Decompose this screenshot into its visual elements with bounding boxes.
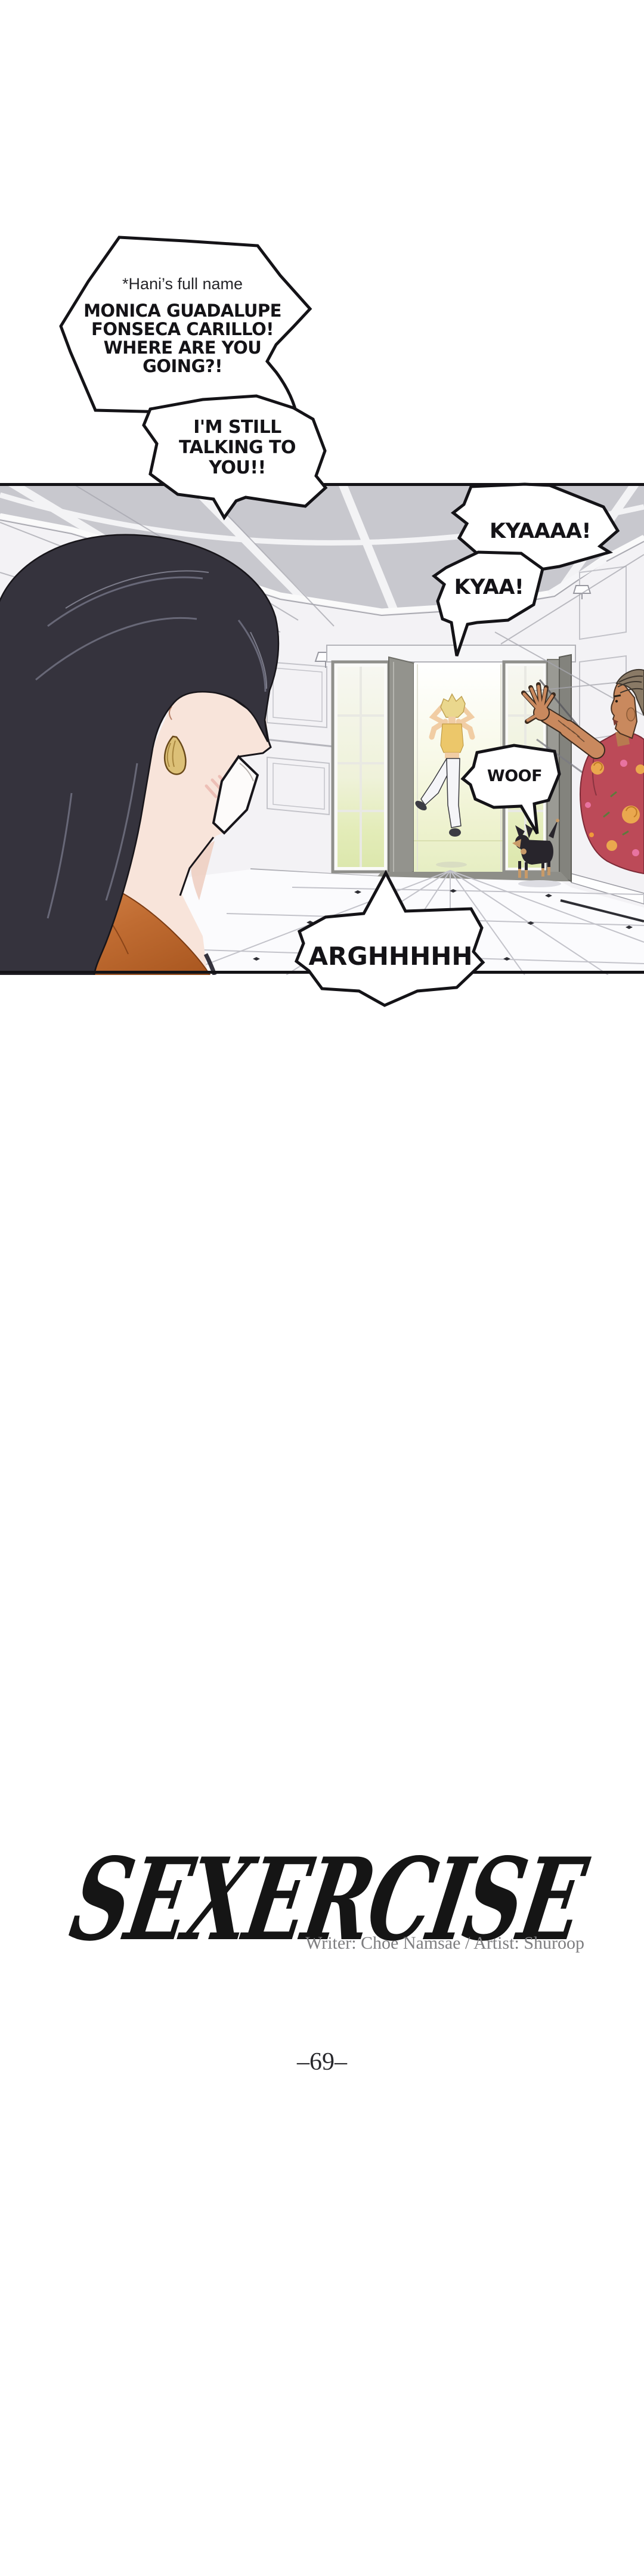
speech-bubble-argh bbox=[296, 873, 483, 1005]
kyaa-text: KYAA! bbox=[435, 576, 543, 599]
still-talking-text: I'M STILL TALKING TO YOU!! bbox=[148, 417, 327, 478]
argh-text: ARGHHHHH bbox=[295, 943, 486, 970]
series-title-block: SEXERCISE bbox=[0, 1813, 644, 1980]
speech-bubble-woof bbox=[463, 745, 559, 834]
speech-bubble-kyaa bbox=[434, 552, 543, 656]
webtoon-page: *Hani’s full name MONICA GUADALUPE FONSE… bbox=[0, 0, 644, 2576]
woof-text: WOOF bbox=[473, 767, 556, 785]
hani-footnote: *Hani’s full name bbox=[93, 275, 272, 293]
kyaaaa-text: KYAAAA! bbox=[463, 520, 618, 543]
author-credits: Writer: Choe Namsae / Artist: Shuroop bbox=[305, 1933, 584, 1953]
monica-shout-text: MONICA GUADALUPE FONSECA CARILLO! WHERE … bbox=[81, 302, 284, 376]
episode-number: –69– bbox=[0, 2048, 644, 2076]
